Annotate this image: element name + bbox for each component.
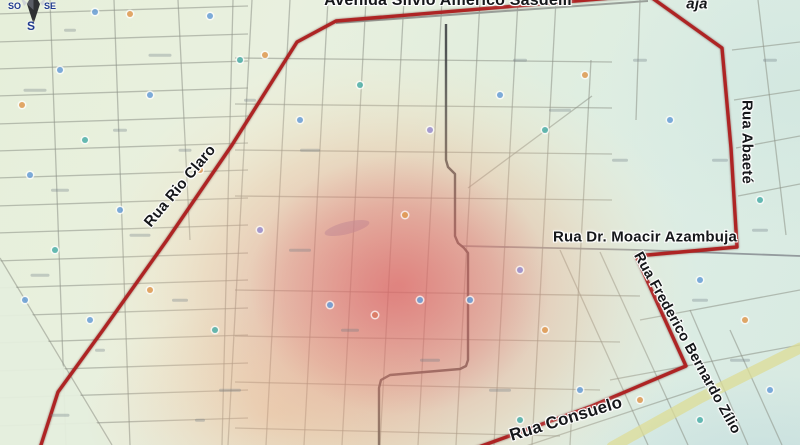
street-label-abaete: Rua Abaeté [739,100,756,184]
poi-marker[interactable] [147,287,153,293]
poi-marker[interactable] [257,227,263,233]
poi-marker[interactable] [237,57,243,63]
poi-marker[interactable] [52,247,58,253]
poi-marker[interactable] [767,387,773,393]
tiny-map-text [752,229,768,232]
street-label-moacir-azambuja: Rua Dr. Moacir Azambuja [553,229,737,246]
tiny-map-text [730,359,750,362]
tiny-map-text [612,159,628,162]
tiny-map-text [31,274,50,277]
poi-marker[interactable] [357,82,363,88]
poi-marker[interactable] [57,67,63,73]
tiny-map-text [172,299,188,302]
tiny-map-text [51,189,69,192]
poi-marker[interactable] [637,397,643,403]
poi-marker[interactable] [517,267,523,273]
poi-marker[interactable] [667,117,673,123]
tiny-map-text [549,109,571,112]
poi-marker[interactable] [542,127,548,133]
tiny-map-text [113,129,127,132]
tiny-map-text [24,89,47,92]
poi-marker[interactable] [212,327,218,333]
tiny-map-text [219,389,241,392]
compass-label-so: SO [8,1,21,11]
poi-marker[interactable] [297,117,303,123]
poi-marker[interactable] [87,317,93,323]
poi-marker[interactable] [427,127,433,133]
street-label-fragment: aja [686,0,707,13]
poi-marker[interactable] [372,312,378,318]
poi-marker[interactable] [19,102,25,108]
tiny-map-text [51,414,70,417]
tiny-map-text [179,149,192,152]
poi-marker[interactable] [117,207,123,213]
poi-marker[interactable] [27,172,33,178]
street-label-avenida-sasdelli: Avenida Silvio Américo Sasdelli [324,0,572,10]
poi-marker[interactable] [402,212,408,218]
compass-label-s: S [27,19,35,33]
poi-marker[interactable] [542,327,548,333]
map-canvas[interactable]: SO SE S Avenida Silvio Américo Sasdelli … [0,0,800,445]
poi-marker[interactable] [417,297,423,303]
poi-marker[interactable] [147,92,153,98]
overlay-layer [0,0,800,445]
poi-marker[interactable] [82,137,88,143]
tiny-map-text [195,419,205,422]
poi-marker[interactable] [327,302,333,308]
tiny-map-text [420,359,440,362]
tiny-map-text [712,159,728,162]
tiny-map-text [763,59,777,62]
poi-marker[interactable] [467,297,473,303]
compass-label-se: SE [44,1,56,11]
poi-marker[interactable] [92,9,98,15]
tiny-map-text [95,349,105,352]
poi-marker[interactable] [697,417,703,423]
tiny-map-text [489,389,511,392]
poi-marker[interactable] [582,72,588,78]
compass-rose: SO SE S [0,0,70,40]
poi-marker[interactable] [207,13,213,19]
poi-marker[interactable] [262,52,268,58]
tiny-map-text [341,329,359,332]
poi-marker[interactable] [697,277,703,283]
tiny-map-text [149,54,172,57]
tiny-map-text [633,59,647,62]
tiny-map-text [692,299,708,302]
tiny-map-text [244,99,256,102]
poi-marker[interactable] [127,11,133,17]
poi-marker[interactable] [577,387,583,393]
tiny-map-text [513,59,527,62]
tiny-map-text [289,249,311,252]
poi-marker[interactable] [742,317,748,323]
poi-marker[interactable] [497,92,503,98]
tiny-map-text [300,149,320,152]
tiny-map-text [130,234,151,237]
poi-marker[interactable] [757,197,763,203]
poi-marker[interactable] [22,297,28,303]
